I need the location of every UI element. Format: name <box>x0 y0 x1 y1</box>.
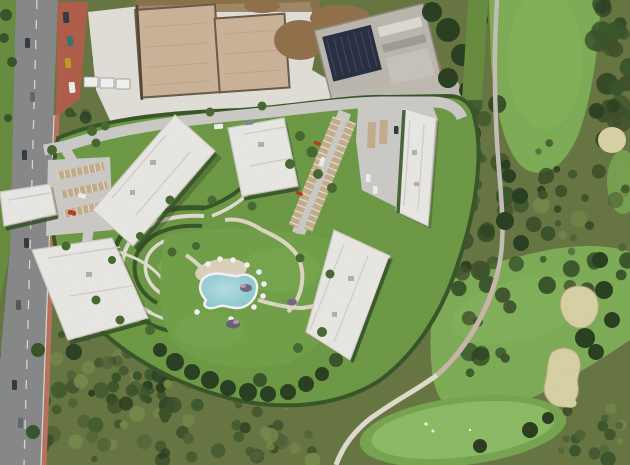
aerial-photo-canvas <box>0 0 630 465</box>
aerial-screenshot <box>0 0 630 465</box>
photo-grain <box>0 0 630 465</box>
